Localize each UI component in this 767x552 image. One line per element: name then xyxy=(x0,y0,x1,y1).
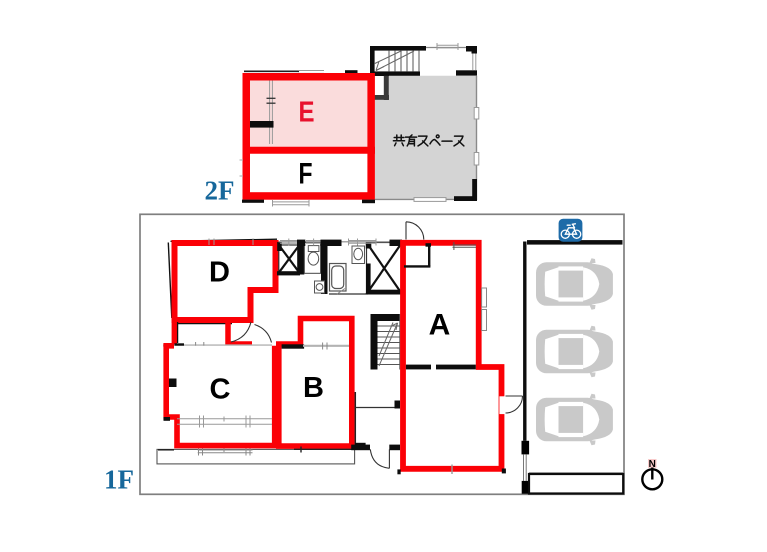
svg-text:D: D xyxy=(209,257,230,289)
svg-text:F: F xyxy=(299,158,313,191)
svg-text:C: C xyxy=(210,374,231,406)
svg-text:B: B xyxy=(303,372,324,404)
svg-text:E: E xyxy=(299,97,315,129)
svg-text:1F: 1F xyxy=(104,465,134,495)
svg-text:2F: 2F xyxy=(205,176,235,206)
svg-text:A: A xyxy=(429,309,451,342)
